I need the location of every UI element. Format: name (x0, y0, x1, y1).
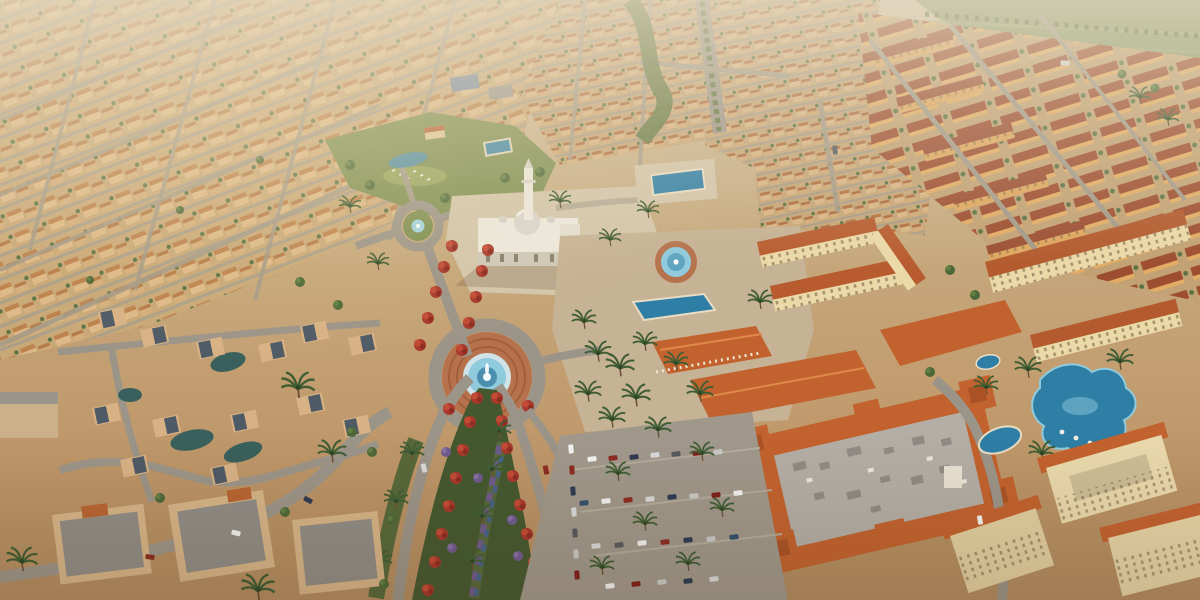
foreground-vignette (0, 0, 1200, 600)
scene-canvas (0, 0, 1200, 600)
aerial-community-render (0, 0, 1200, 600)
